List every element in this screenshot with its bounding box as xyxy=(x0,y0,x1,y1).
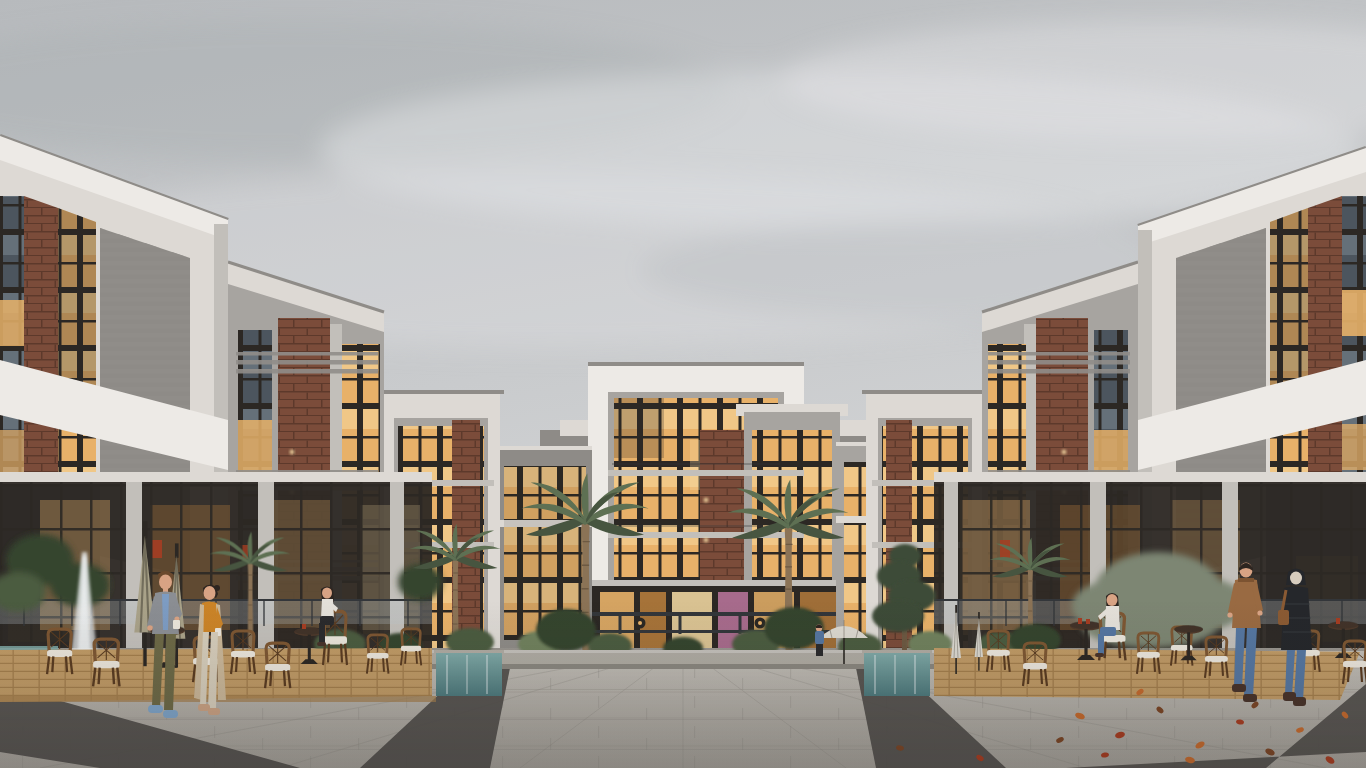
render-canvas: Modern residential compound courtyard at… xyxy=(0,0,1366,768)
architectural-render: Modern residential compound courtyard at… xyxy=(0,0,1366,768)
bottom-vignette xyxy=(0,600,1366,768)
